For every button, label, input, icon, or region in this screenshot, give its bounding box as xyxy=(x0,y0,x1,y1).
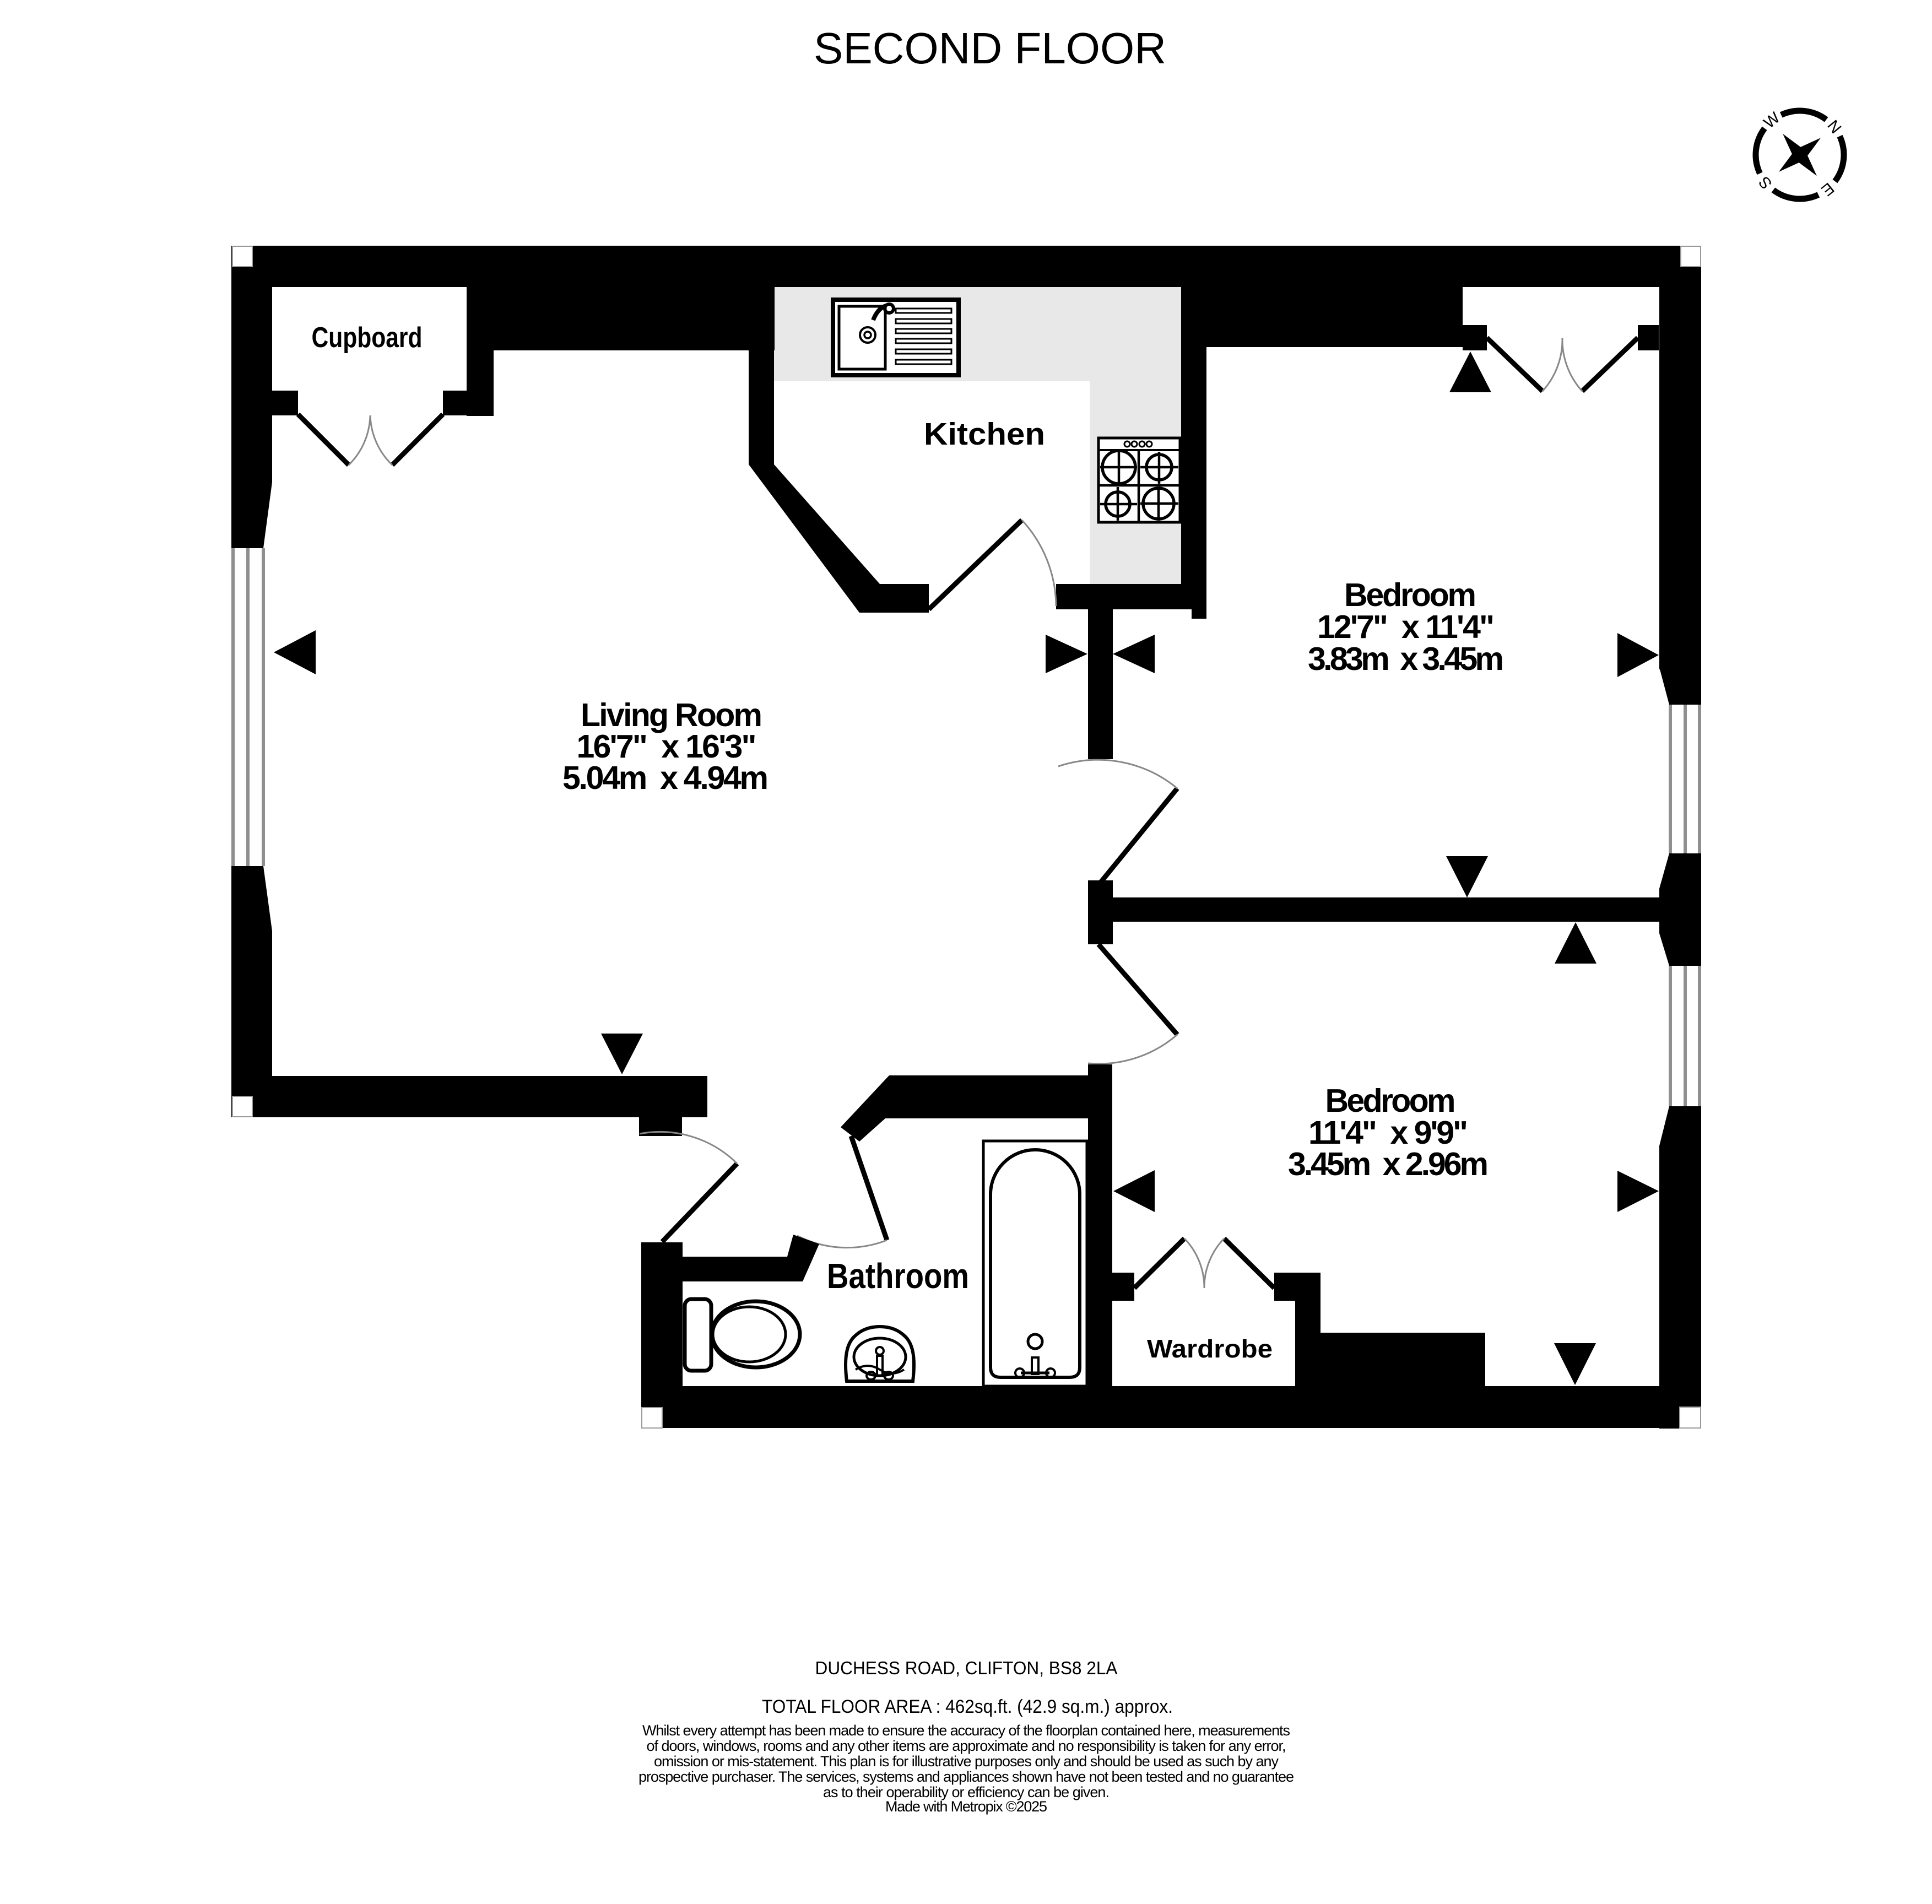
svg-text:DUCHESS ROAD, CLIFTON, BS8 2LA: DUCHESS ROAD, CLIFTON, BS8 2LA xyxy=(815,1658,1118,1678)
svg-text:3.45m x 2.96m: 3.45m x 2.96m xyxy=(1288,1146,1489,1182)
svg-text:of doors, windows, rooms and a: of doors, windows, rooms and any other i… xyxy=(647,1738,1286,1754)
svg-text:omission or mis-statement. Thi: omission or mis-statement. This plan is … xyxy=(654,1753,1279,1770)
svg-text:Cupboard: Cupboard xyxy=(312,322,423,354)
svg-text:Bedroom: Bedroom xyxy=(1325,1083,1456,1119)
svg-text:Whilst every attempt has been: Whilst every attempt has been made to en… xyxy=(642,1722,1290,1739)
svg-text:Bathroom: Bathroom xyxy=(827,1256,969,1296)
svg-text:Kitchen: Kitchen xyxy=(924,416,1045,452)
svg-text:Bedroom: Bedroom xyxy=(1344,577,1476,613)
svg-text:5.04m x 4.94m: 5.04m x 4.94m xyxy=(562,760,769,796)
svg-text:TOTAL FLOOR AREA : 462sq.ft. (: TOTAL FLOOR AREA : 462sq.ft. (42.9 sq.m.… xyxy=(762,1696,1173,1717)
svg-text:3.83m x 3.45m: 3.83m x 3.45m xyxy=(1308,641,1504,677)
svg-text:Made with Metropix ©2025: Made with Metropix ©2025 xyxy=(885,1798,1047,1815)
svg-text:12'7" x 11'4": 12'7" x 11'4" xyxy=(1317,609,1495,645)
svg-text:Wardrobe: Wardrobe xyxy=(1147,1334,1273,1363)
svg-text:SECOND FLOOR: SECOND FLOOR xyxy=(814,24,1166,73)
svg-text:prospective purchaser. The ser: prospective purchaser. The services, sys… xyxy=(638,1768,1294,1785)
